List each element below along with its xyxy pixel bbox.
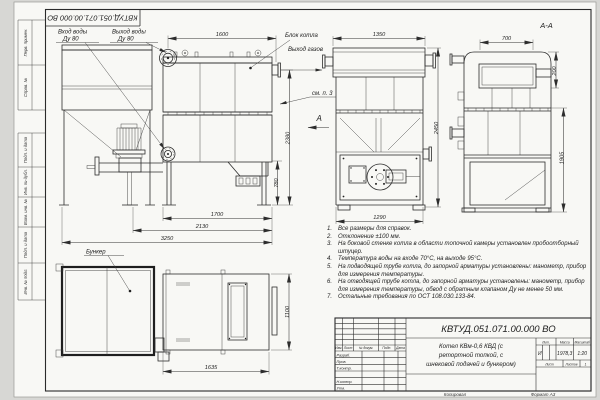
label-water-inlet: Вход воды xyxy=(58,30,88,36)
tb-name-line2: ретортной топкой, с xyxy=(438,352,504,359)
tb-row-prov: Пров. xyxy=(337,360,347,364)
dim-gas-offset: 200 xyxy=(552,65,558,76)
label-boiler-block: Блок котла xyxy=(285,33,319,39)
tb-scale-value: 1:20 xyxy=(577,351,587,357)
dim-total-height: 2380 xyxy=(286,131,292,145)
tb-row-tkontr: Т.контр. xyxy=(337,367,352,371)
note-text: На боковой стенке котла в области топочн… xyxy=(338,241,593,256)
tb-header-podp: Подп. xyxy=(382,346,391,350)
note-number: 2. xyxy=(327,234,338,242)
tb-header-doc: № докум. xyxy=(359,346,374,350)
note-item: 4.Температура воды на входе 70°С, на вых… xyxy=(327,256,593,264)
label-water-outlet-dn: Ду 80 xyxy=(117,37,134,43)
note-item: 3.На боковой стенке котла в области топо… xyxy=(327,241,593,256)
dim-plan-width: 1100 xyxy=(285,305,291,318)
margin-label: Подп. и дата xyxy=(23,231,28,258)
dim-boiler-length: 1600 xyxy=(216,32,229,38)
label-water-outlet: Выход воды xyxy=(112,30,146,36)
tb-mass-value: 1978,3 xyxy=(557,351,573,357)
margin-label: Подп. и дата xyxy=(23,136,28,163)
note-item: 1.Все размеры для справок. xyxy=(327,226,593,234)
drawing-sheet: Перв. примен. Справ. № Подп. и дата Инв.… xyxy=(0,0,600,400)
dim-section-width: 700 xyxy=(502,36,512,42)
note-text: Остальные требования по ОСТ 108.030.133-… xyxy=(338,294,593,302)
note-number: 1. xyxy=(327,226,338,234)
note-number: 6. xyxy=(327,279,338,294)
note-number: 3. xyxy=(327,241,338,256)
label-see-note3: см. п. 3 xyxy=(312,91,333,97)
note-text: Все размеры для справок. xyxy=(338,226,593,234)
tb-header-izm: Изм. xyxy=(335,346,342,350)
dim-block-length: 1700 xyxy=(211,212,224,218)
note-text: На подводящей трубе котла, до запорной а… xyxy=(338,264,593,279)
tb-copied: Копировал xyxy=(444,392,467,397)
note-item: 7.Остальные требования по ОСТ 108.030.13… xyxy=(327,294,593,302)
dim-mid-length: 2130 xyxy=(195,224,209,230)
label-section-arrow: А xyxy=(316,114,322,123)
tb-sheet-label: Лист xyxy=(544,362,554,366)
dim-front-height: 2450 xyxy=(434,121,440,135)
tb-row-razrab: Разраб. xyxy=(337,353,351,357)
note-number: 4. xyxy=(327,256,338,264)
tb-mass-label: Масса xyxy=(560,340,570,344)
tb-lit-value: И xyxy=(538,351,542,357)
tb-sheets-value: 1 xyxy=(585,362,587,366)
note-item: 5.На подводящей трубе котла, до запорной… xyxy=(327,264,593,279)
dim-ash-height: 780 xyxy=(274,177,280,187)
tb-header-data: Дата xyxy=(395,346,405,350)
margin-label: Инв. № подл. xyxy=(23,269,28,295)
note-text: На отводящей трубе котла, до запорной ар… xyxy=(338,279,593,294)
label-water-inlet-dn: Ду 80 xyxy=(62,37,79,43)
dim-furnace-width: 1290 xyxy=(373,215,386,221)
margin-label: Справ. № xyxy=(23,78,28,97)
tb-format: Формат А3 xyxy=(531,392,556,397)
note-number: 7. xyxy=(327,294,338,302)
margin-label: Перв. примен. xyxy=(23,29,28,57)
tb-lit-label: Лит. xyxy=(541,340,550,344)
tb-name-line3: шнековой подачей и бункером) xyxy=(426,361,516,368)
margin-label: Инв. № дубл. xyxy=(23,169,28,195)
tb-sheets-label: Листов xyxy=(564,362,577,366)
tb-row-nkontr: Н.контр. xyxy=(337,380,353,384)
tb-row-utv: Утв. xyxy=(337,387,346,391)
tb-name-line1: Котел КВм-0,6 КВД (с xyxy=(439,343,504,350)
drawing-canvas: Перв. примен. Справ. № Подп. и дата Инв.… xyxy=(0,0,600,400)
dim-section-height: 1905 xyxy=(560,151,566,164)
tb-scale-label: Масштаб xyxy=(574,340,590,344)
top-stamp-designation: КВТУД.051.071.00.000 ВО xyxy=(47,14,137,23)
tb-designation: КВТУД.051.071.00.000 ВО xyxy=(441,324,556,335)
note-item: 6.На отводящей трубе котла, до запорной … xyxy=(327,279,593,294)
note-text: Температура воды на входе 70°С, на выход… xyxy=(338,256,593,264)
dim-total-length: 3250 xyxy=(161,236,174,242)
dim-front-width: 1350 xyxy=(373,32,386,38)
tb-header-list: Лист xyxy=(343,346,353,350)
dim-plan-length: 1635 xyxy=(205,365,218,371)
technical-notes: 1.Все размеры для справок. 2.Отклонение … xyxy=(327,226,593,302)
note-number: 5. xyxy=(327,264,338,279)
label-bunker: Бункер xyxy=(86,250,106,256)
margin-label: Взам. инв. № xyxy=(23,199,28,225)
section-title: А-А xyxy=(539,21,553,30)
label-gas-outlet: Выход газов xyxy=(288,47,323,53)
